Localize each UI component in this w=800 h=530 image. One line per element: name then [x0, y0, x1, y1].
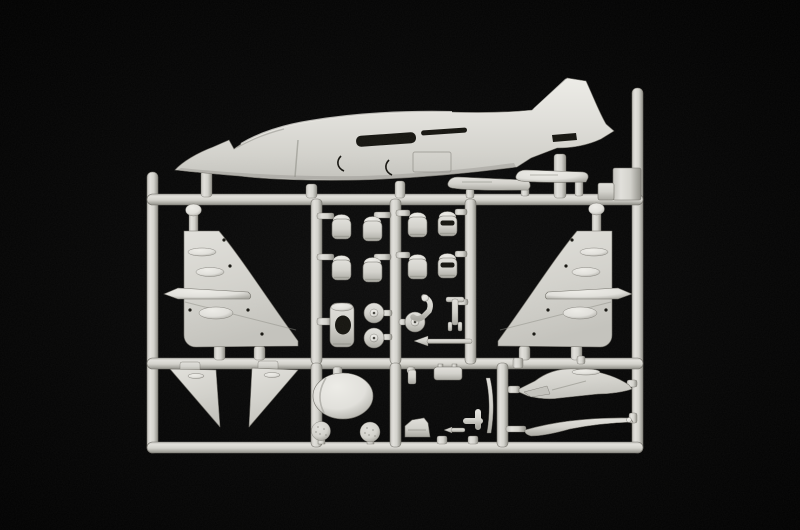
- film-grain-overlay: [0, 0, 800, 530]
- sprue-photo: [0, 0, 800, 530]
- photo-stage: [0, 0, 800, 530]
